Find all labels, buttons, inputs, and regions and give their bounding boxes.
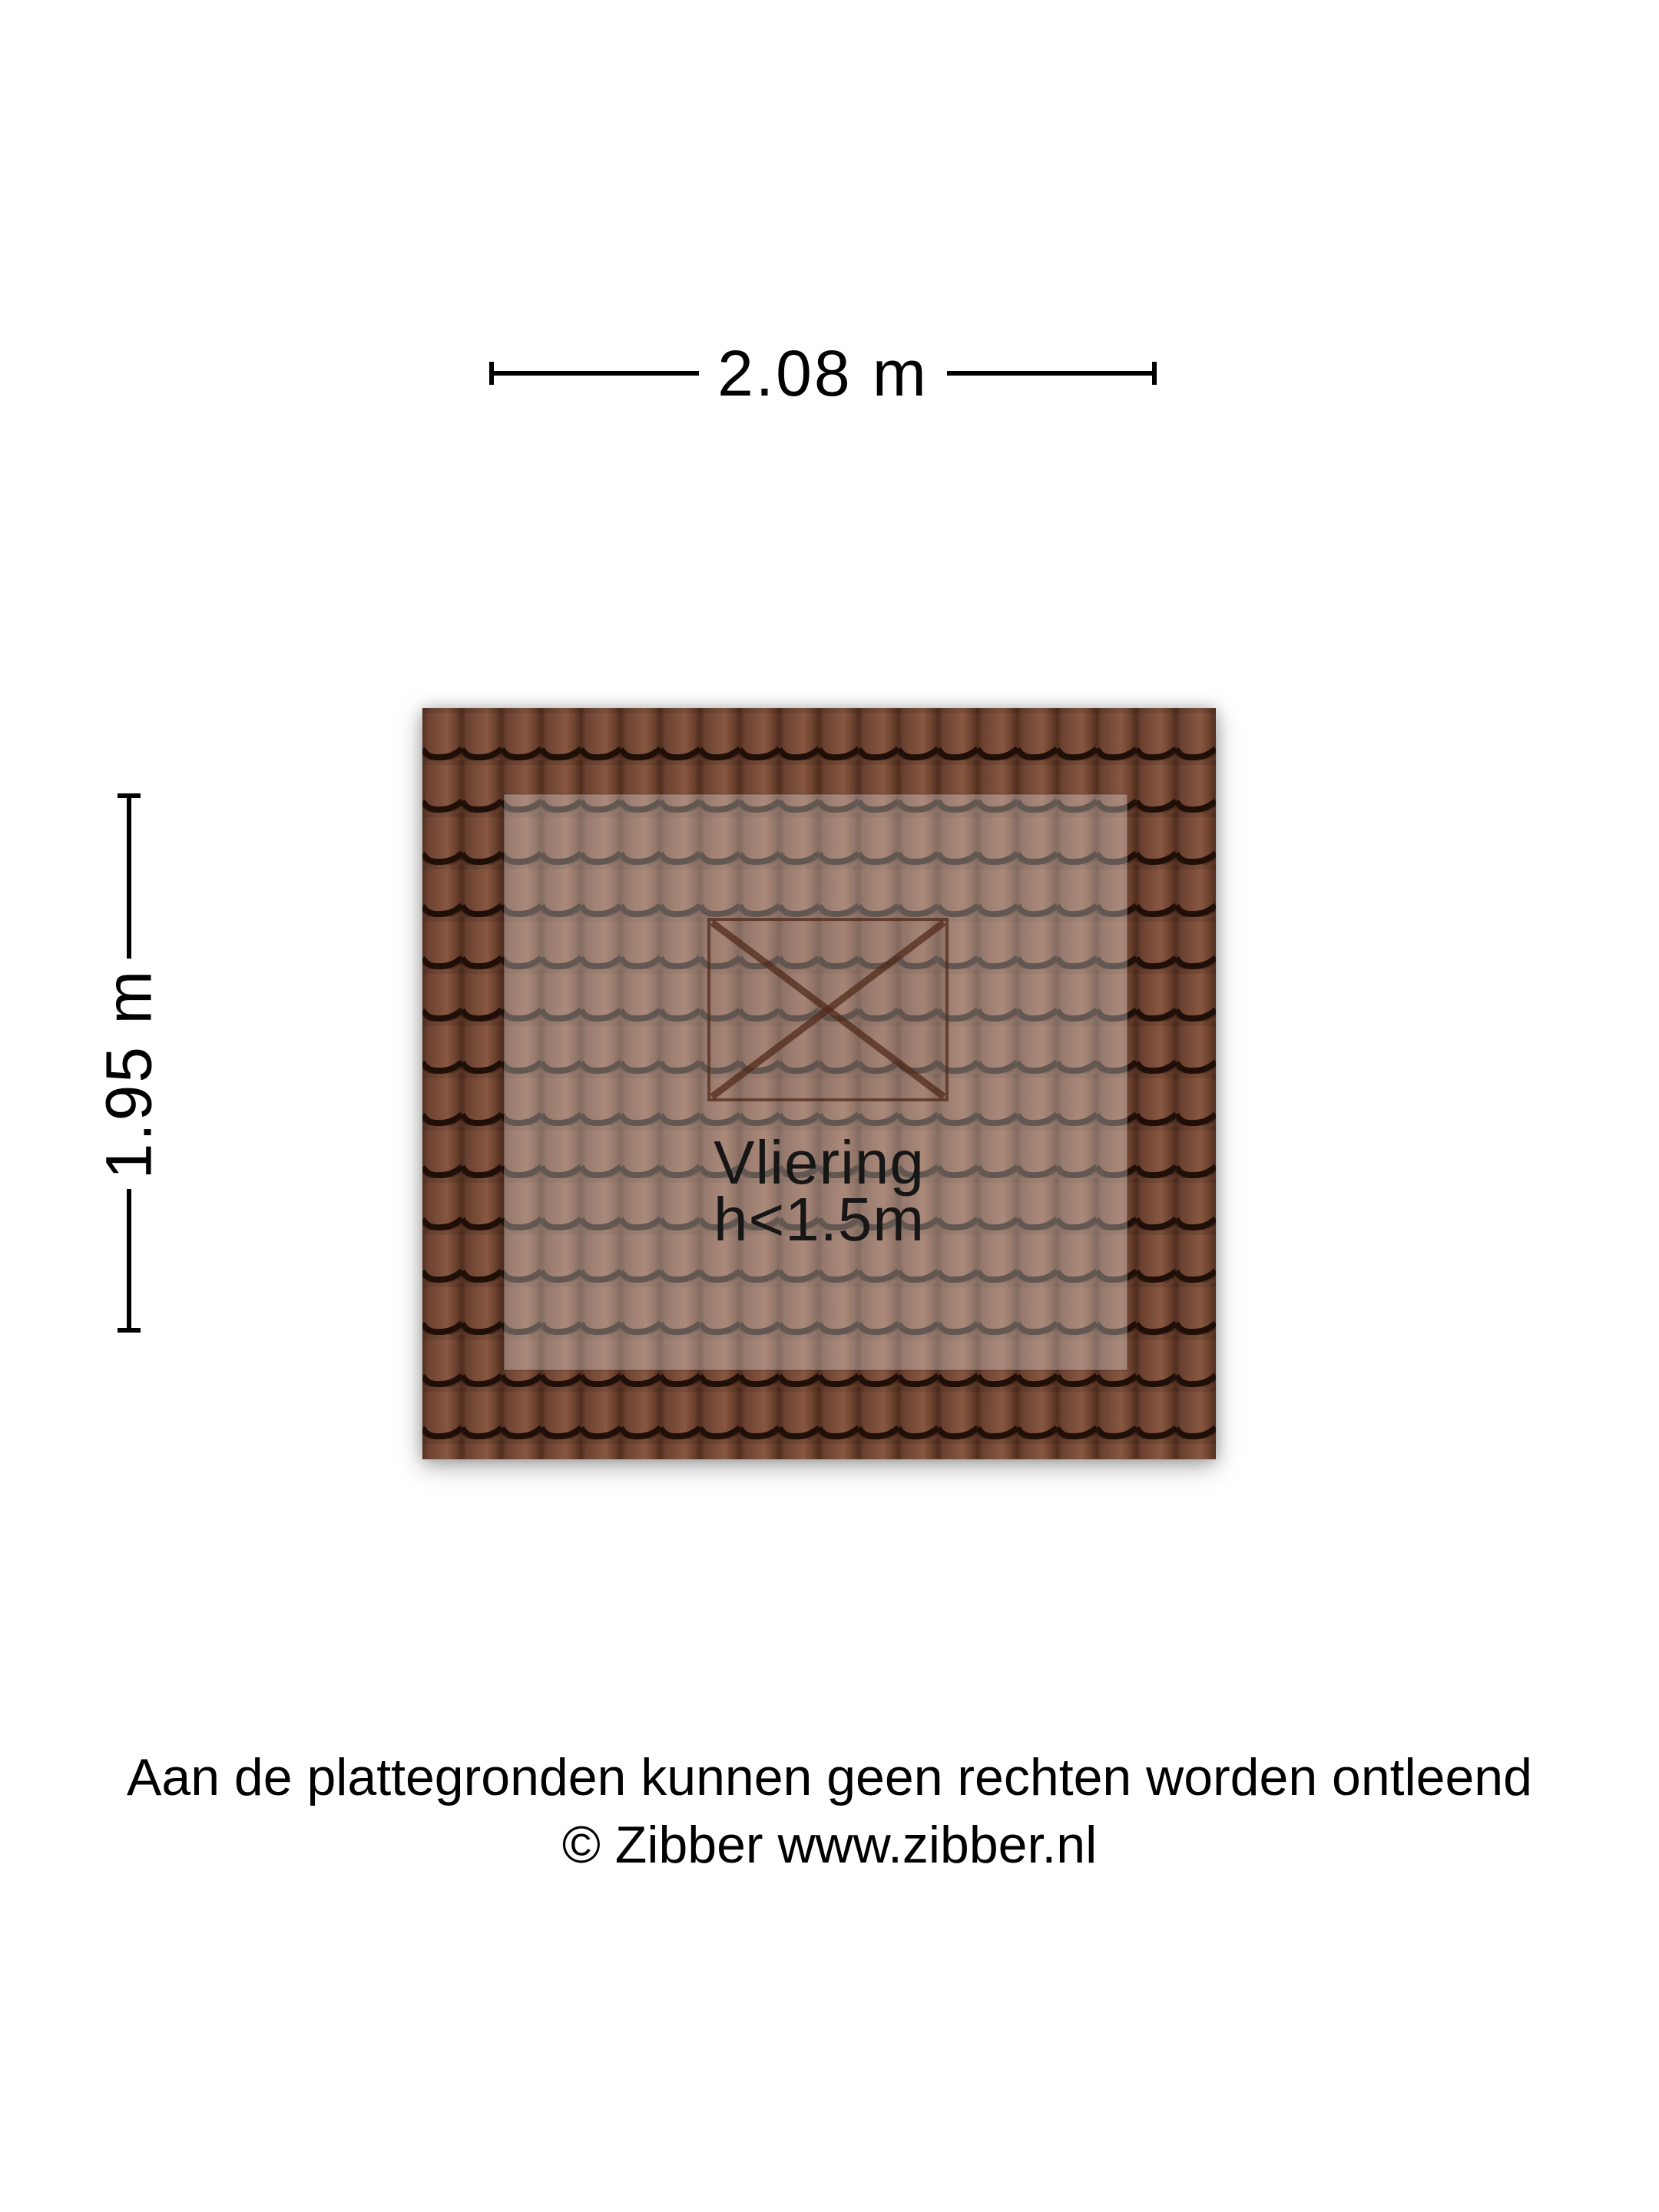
room-name: Vliering xyxy=(422,1134,1216,1191)
disclaimer: Aan de plattegronden kunnen geen rechten… xyxy=(0,1743,1659,1879)
disclaimer-line1: Aan de plattegronden kunnen geen rechten… xyxy=(0,1743,1659,1811)
dimension-tick-bottom xyxy=(118,1328,141,1333)
roof-hatch-symbol xyxy=(709,919,947,1100)
dimension-line-top-segment xyxy=(127,797,131,959)
roof-tiles-graphic xyxy=(422,708,1216,1459)
dimension-horizontal: 2.08 m xyxy=(489,335,1157,412)
dimension-tick-right xyxy=(1152,362,1157,385)
dimension-width-label: 2.08 m xyxy=(699,336,947,411)
dimension-line-right-segment xyxy=(947,371,1152,376)
room-label: Vliering h<1.5m xyxy=(422,1134,1216,1248)
dimension-line-bottom-segment xyxy=(127,1189,131,1329)
dimension-height-label: 1.95 m xyxy=(92,969,167,1180)
dimension-line-left-segment xyxy=(494,371,699,376)
dimension-vertical: 1.95 m xyxy=(94,793,164,1333)
disclaimer-line2: © Zibber www.zibber.nl xyxy=(0,1811,1659,1879)
roof-plan: Vliering h<1.5m xyxy=(422,708,1216,1459)
floorplan-page: 2.08 m 1.95 m xyxy=(0,0,1659,2212)
room-height-note: h<1.5m xyxy=(422,1191,1216,1248)
